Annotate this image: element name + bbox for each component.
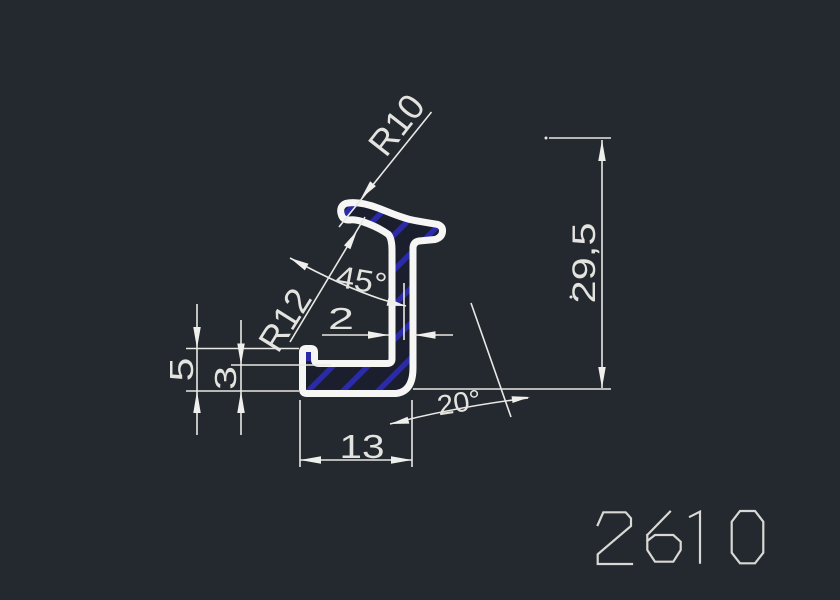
svg-text:13: 13 [340, 428, 385, 465]
svg-text:29,5: 29,5 [566, 223, 602, 304]
svg-text:5: 5 [163, 358, 200, 382]
svg-text:2: 2 [328, 301, 354, 336]
svg-text:3: 3 [208, 366, 243, 390]
